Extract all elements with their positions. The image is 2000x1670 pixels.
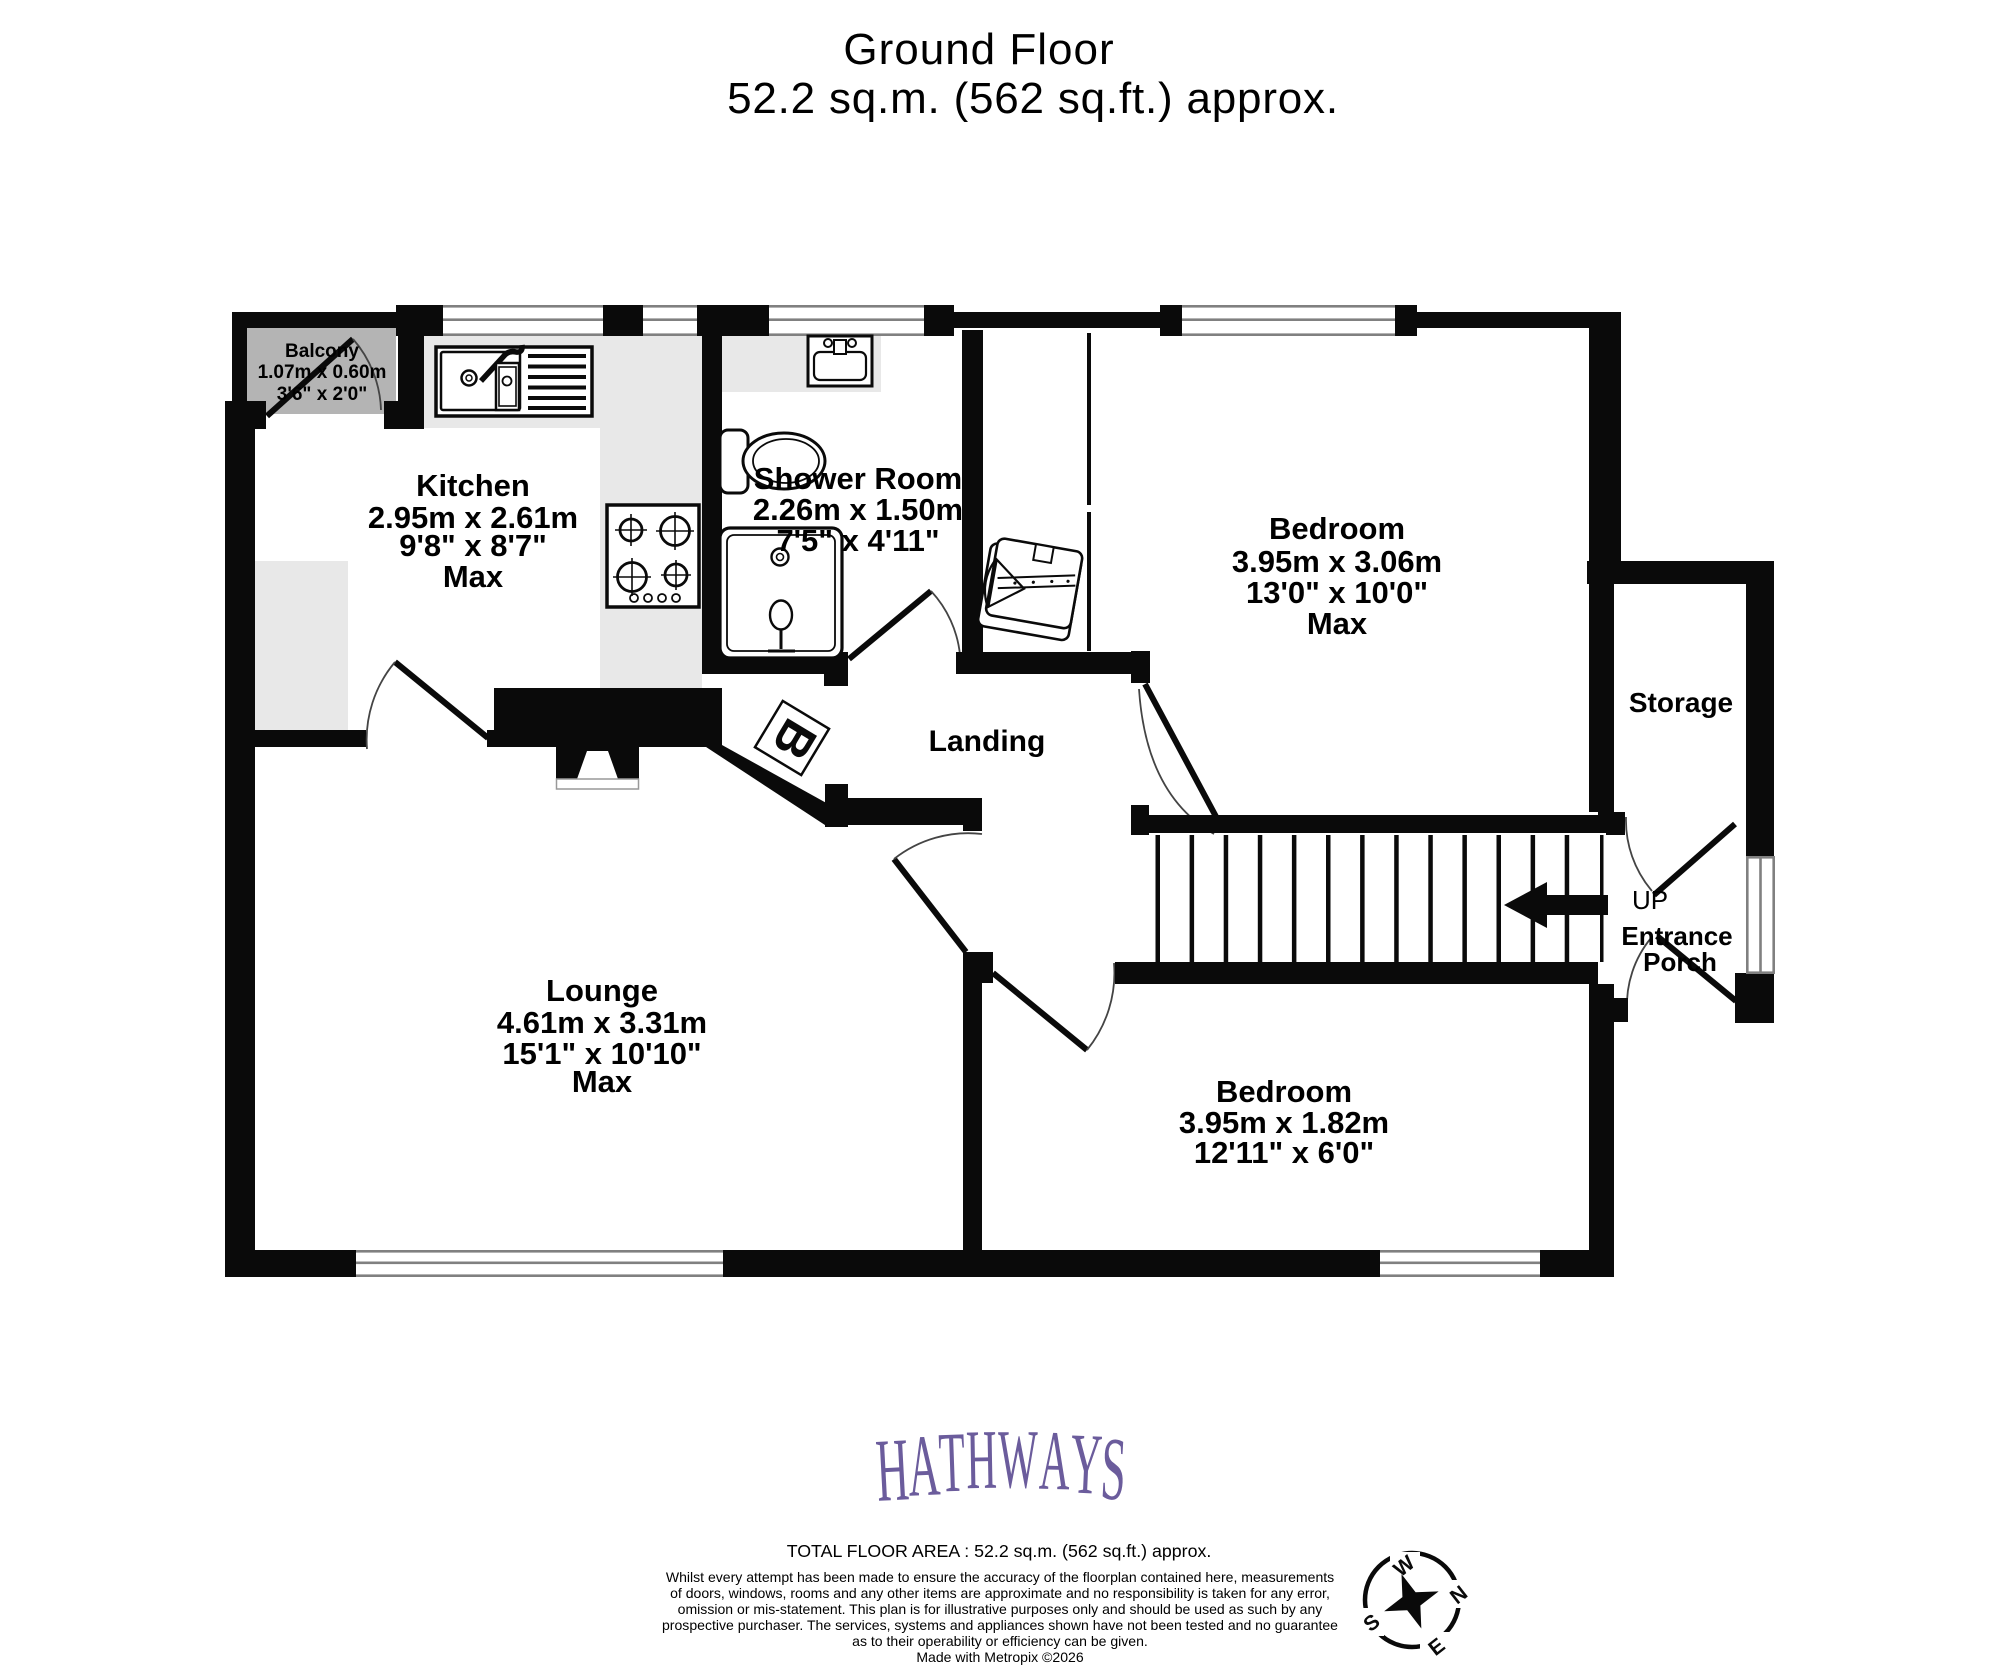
svg-text:Bedroom: Bedroom [1216,1074,1352,1109]
svg-text:S: S [1098,1420,1128,1520]
svg-text:TOTAL FLOOR AREA : 52.2 sq.m.: TOTAL FLOOR AREA : 52.2 sq.m. (562 sq.ft… [787,1541,1212,1561]
svg-text:Bedroom: Bedroom [1269,511,1405,546]
svg-text:as to their operability or eff: as to their operability or efficiency ca… [852,1633,1148,1649]
svg-text:Balcony: Balcony [285,341,359,362]
svg-text:4.61m x 3.31m: 4.61m x 3.31m [497,1005,707,1040]
svg-text:W: W [998,1414,1038,1506]
svg-text:Lounge: Lounge [546,973,658,1008]
svg-text:prospective purchaser. The ser: prospective purchaser. The services, sys… [662,1617,1338,1633]
svg-text:omission or mis-statement. Thi: omission or mis-statement. This plan is … [678,1601,1323,1617]
svg-text:13'0" x 10'0": 13'0" x 10'0" [1246,575,1428,610]
svg-text:of doors, windows, rooms and a: of doors, windows, rooms and any other i… [670,1585,1330,1601]
svg-text:Max: Max [572,1064,633,1099]
svg-text:Kitchen: Kitchen [416,468,530,503]
svg-text:Y: Y [1068,1415,1104,1512]
svg-text:UP: UP [1632,885,1668,915]
svg-text:Whilst every attempt has been: Whilst every attempt has been made to en… [666,1569,1334,1585]
svg-text:12'11" x 6'0": 12'11" x 6'0" [1194,1135,1374,1170]
svg-text:T: T [937,1413,967,1510]
svg-text:Storage: Storage [1629,687,1733,718]
svg-text:H: H [874,1421,912,1521]
svg-text:1.07m x 0.60m: 1.07m x 0.60m [258,362,387,383]
svg-text:2.26m x 1.50m: 2.26m x 1.50m [753,492,963,527]
svg-text:7'5" x 4'11": 7'5" x 4'11" [776,523,939,558]
svg-text:A: A [906,1417,942,1516]
svg-text:3.95m x 3.06m: 3.95m x 3.06m [1232,544,1442,579]
svg-text:Porch: Porch [1643,947,1717,977]
svg-text:H: H [965,1412,997,1507]
svg-text:Ground Floor: Ground Floor [843,25,1114,74]
svg-text:Max: Max [443,559,504,594]
svg-text:A: A [1038,1413,1071,1509]
svg-text:9'8" x 8'7": 9'8" x 8'7" [399,528,547,563]
svg-text:Max: Max [1307,606,1368,641]
svg-text:Made with Metropix ©2026: Made with Metropix ©2026 [916,1649,1083,1665]
svg-text:Landing: Landing [929,725,1046,758]
svg-text:Shower Room: Shower Room [754,461,962,496]
svg-text:52.2 sq.m. (562 sq.ft.) approx: 52.2 sq.m. (562 sq.ft.) approx. [727,74,1339,123]
svg-text:3'6" x 2'0": 3'6" x 2'0" [277,384,367,405]
